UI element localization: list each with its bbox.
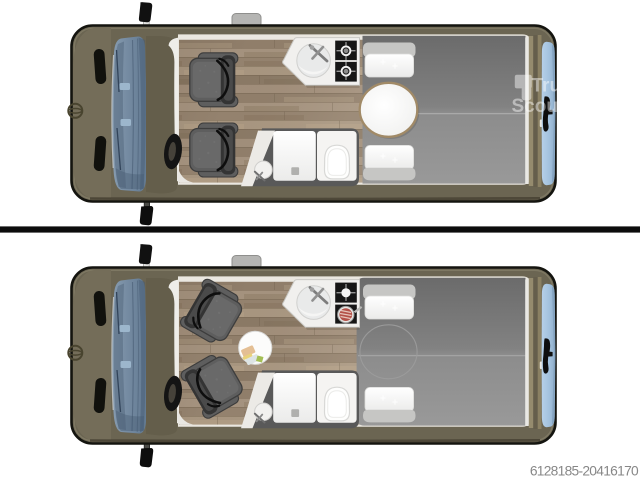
svg-text:Truck: Truck (532, 76, 583, 97)
svg-text:6128185-20416170: 6128185-20416170 (530, 464, 639, 479)
svg-text:Scout: Scout (512, 96, 565, 117)
